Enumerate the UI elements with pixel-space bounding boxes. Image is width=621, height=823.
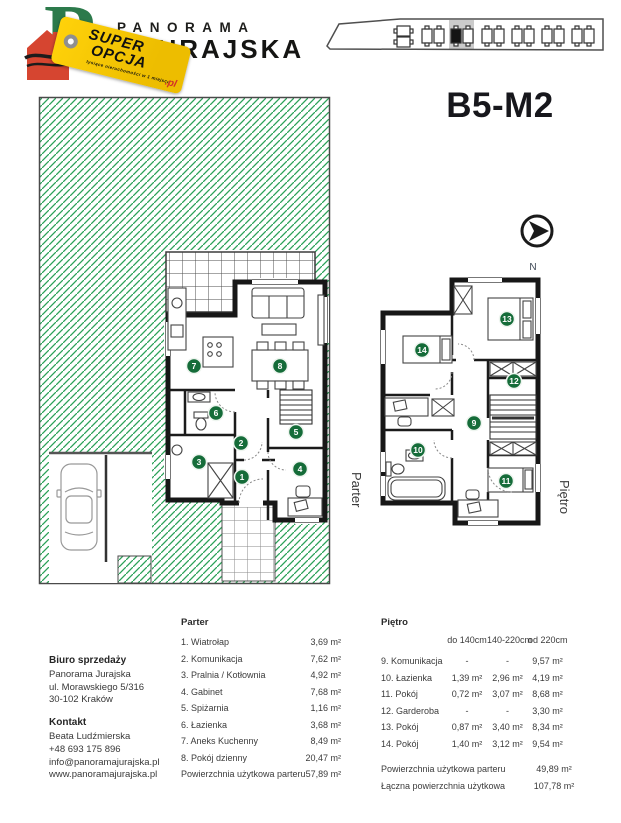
brand-name-top: PANORAMA [117, 20, 256, 35]
pietro-plan [379, 276, 542, 527]
table-row: 9. Komunikacja--9,57 m² [381, 657, 586, 666]
room-number-badge: 4 [293, 462, 308, 477]
site-plan-strip [320, 14, 616, 60]
room-number-badge: 5 [289, 425, 304, 440]
office-line: ul. Morawskiego 5/316 [49, 682, 199, 695]
svg-text:1: 1 [240, 472, 245, 482]
contact-person: Beata Ludźmierska [49, 731, 199, 744]
website-url: www.panoramajurajska.pl [49, 769, 199, 782]
svg-text:7: 7 [192, 361, 197, 371]
svg-text:2: 2 [239, 438, 244, 448]
table-row: 14. Pokój1,40 m²3,12 m²9,54 m² [381, 740, 586, 749]
pietro-table-title: Piętro [381, 618, 586, 628]
parter-floor-label: Parter [349, 472, 364, 508]
table-row: 7. Aneks Kuchenny8,49 m² [181, 737, 341, 746]
site-unit-vertical [394, 26, 413, 47]
room-number-badge: 7 [187, 359, 202, 374]
svg-text:12: 12 [509, 376, 519, 386]
car-icon [57, 464, 101, 550]
pietro-total-row: Powierzchnia użytkowa parteru49,89 m² [381, 765, 586, 774]
compass-north-label: N [529, 262, 536, 273]
pietro-total-row: Łączna powierzchnia użytkowa107,78 m² [381, 782, 586, 791]
parter-plan [164, 278, 329, 524]
room-number-badge: 9 [467, 416, 482, 431]
table-row: 3. Pralnia / Kotłownia4,92 m² [181, 671, 341, 680]
room-number-badge: 13 [500, 312, 515, 327]
svg-text:8: 8 [278, 361, 283, 371]
parter-table: Parter 1. Wiatrołap3,69 m² 2. Komunikacj… [181, 618, 341, 787]
pietro-totals: Powierzchnia użytkowa parteru49,89 m² Łą… [381, 765, 586, 792]
compass-icon: N [522, 216, 552, 273]
room-number-badge: 10 [411, 443, 426, 458]
flyer-page: P PANORAMA JURAJSKA SUPER OPCJA tysiące … [0, 0, 621, 823]
table-row: 12. Garderoba--3,30 m² [381, 707, 586, 716]
office-line: 30-102 Kraków [49, 694, 199, 707]
table-row: 2. Komunikacja7,62 m² [181, 655, 341, 664]
svg-text:5: 5 [294, 427, 299, 437]
contact-heading: Kontakt [49, 717, 199, 729]
table-row: 11. Pokój0,72 m²3,07 m²8,68 m² [381, 690, 586, 699]
stairs [490, 395, 536, 439]
room-number-badge: 6 [209, 406, 224, 421]
pietro-table: Piętro do 140cm 140-220cm od 220cm 9. Ko… [381, 618, 586, 800]
parter-table-title: Parter [181, 618, 341, 628]
svg-text:14: 14 [417, 345, 427, 355]
tag-grommet-icon [62, 33, 79, 50]
logo: P PANORAMA JURAJSKA SUPER OPCJA tysiące … [18, 4, 318, 96]
room-number-badge: 12 [507, 374, 522, 389]
contact-phone: +48 693 175 896 [49, 744, 199, 757]
table-row: 6. Łazienka3,68 m² [181, 721, 341, 730]
svg-text:13: 13 [502, 314, 512, 324]
svg-text:3: 3 [197, 457, 202, 467]
floor-plans: 1 2 3 4 5 6 7 8 9 10 11 12 13 14 Parter … [0, 90, 621, 590]
room-number-badge: 3 [192, 455, 207, 470]
svg-text:9: 9 [472, 418, 477, 428]
tag-suffix: .pl [164, 77, 178, 90]
room-number-badge: 11 [499, 474, 514, 489]
svg-text:10: 10 [413, 445, 423, 455]
table-row: 10. Łazienka1,39 m²2,96 m²4,19 m² [381, 674, 586, 683]
table-row: 5. Spiżarnia1,16 m² [181, 704, 341, 713]
svg-text:4: 4 [298, 464, 303, 474]
pietro-table-header: do 140cm 140-220cm od 220cm [381, 636, 586, 645]
svg-text:11: 11 [502, 476, 511, 486]
table-row: 13. Pokój0,87 m²3,40 m²8,34 m² [381, 723, 586, 732]
office-heading: Biuro sprzedaży [49, 655, 199, 667]
pietro-floor-label: Piętro [557, 480, 572, 514]
stairs [280, 390, 312, 424]
office-line: Panorama Jurajska [49, 669, 199, 682]
room-number-badge: 2 [234, 436, 249, 451]
table-row: 8. Pokój dzienny20,47 m² [181, 754, 341, 763]
room-number-badge: 14 [415, 343, 430, 358]
contact-block: Biuro sprzedaży Panorama Jurajska ul. Mo… [49, 655, 199, 782]
room-number-badge: 8 [273, 359, 288, 374]
room-number-badge: 1 [235, 470, 250, 485]
table-row: 1. Wiatrołap3,69 m² [181, 638, 341, 647]
contact-email: info@panoramajurajska.pl [49, 757, 199, 770]
parter-total-row: Powierzchnia użytkowa parteru57,89 m² [181, 770, 341, 779]
table-row: 4. Gabinet7,68 m² [181, 688, 341, 697]
svg-text:6: 6 [214, 408, 219, 418]
